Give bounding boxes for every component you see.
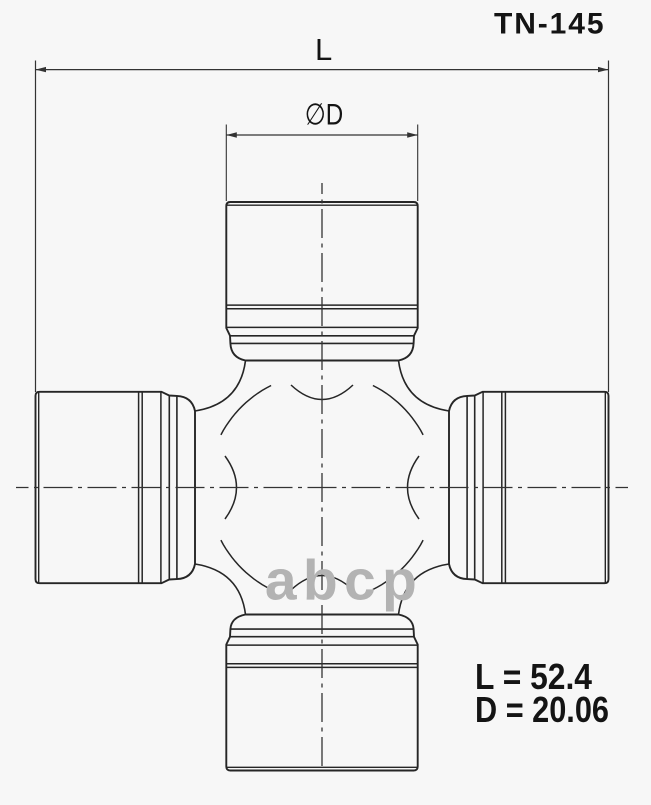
svg-text:TN-145: TN-145 xyxy=(494,8,605,41)
svg-text:L: L xyxy=(315,32,332,67)
svg-text:D = 20.06: D = 20.06 xyxy=(475,689,609,730)
svg-text:abcp: abcp xyxy=(265,549,423,613)
svg-text:∅D: ∅D xyxy=(305,99,344,132)
